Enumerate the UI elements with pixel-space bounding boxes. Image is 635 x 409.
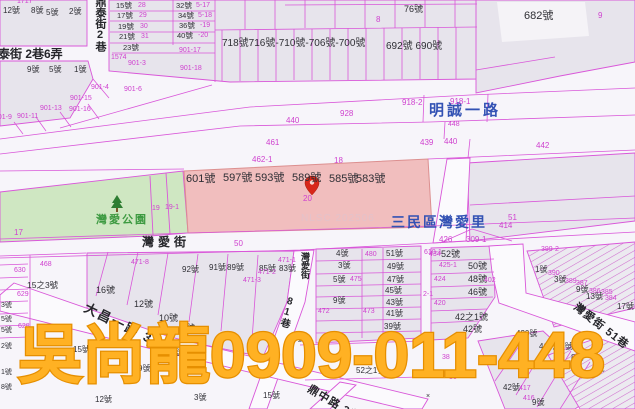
map-label: 901-11 — [17, 113, 38, 120]
map-label: 83號 — [279, 265, 296, 273]
lot-597: 597號 — [223, 173, 252, 184]
map-label: 76號 — [404, 5, 423, 14]
map-label: 8號 — [1, 384, 12, 391]
map-label: 480 — [365, 251, 377, 258]
map-label: 434 — [429, 251, 441, 258]
map-label: 1574 — [111, 54, 127, 61]
map-label: 439 — [420, 139, 433, 147]
map-label: 1號 — [535, 266, 547, 274]
lot-585: 585號 — [329, 174, 358, 185]
map-label: 8 — [376, 16, 380, 24]
map-label: 928 — [340, 110, 353, 118]
lot-589: 589號 — [292, 173, 321, 184]
map-label: 692號 690號 — [386, 42, 442, 52]
map-label: 51號 — [386, 250, 403, 258]
street-dingtai-lane2-vertical-label: 鼎泰街2巷 — [94, 0, 105, 52]
map-label: 50號 — [468, 262, 487, 271]
map-label: 471-8 — [131, 259, 149, 266]
map-label: 901-6 — [124, 86, 142, 93]
map-label: 17 — [14, 229, 23, 237]
map-label: 471-3 — [243, 277, 261, 284]
map-label: 15號 — [263, 392, 280, 400]
map-label: 9號 — [532, 399, 544, 407]
map-label: 18 — [334, 157, 343, 165]
map-label: 420 — [434, 300, 446, 307]
map-label: 471-1 — [278, 257, 296, 264]
agent-watermark: 吳尚龍0909-011-448 — [18, 323, 605, 387]
map-label: 4號 — [336, 250, 348, 258]
map-label: 19-1 — [165, 204, 179, 211]
map-label: 30 — [140, 23, 148, 30]
cadastral-map-viewport[interactable]: 鼎泰街 2巷6弄鼎泰街2巷明誠一路三民區灣愛里灣愛街灣愛街大昌一路 39巷鼎中路… — [0, 0, 635, 409]
map-label: × — [426, 393, 430, 400]
map-label: 901-9 — [0, 114, 12, 121]
map-label: 12號 — [3, 7, 20, 15]
map-label: 5號 — [333, 276, 345, 284]
map-label: 40號 — [177, 32, 193, 40]
map-label: 5號 — [46, 9, 58, 17]
map-label: 12號 — [95, 396, 112, 404]
map-label: 9號 — [333, 297, 345, 305]
map-label: 47號 — [387, 276, 404, 284]
map-label: 29 — [139, 12, 147, 19]
map-label: 91號 — [209, 264, 226, 272]
lot-601: 601號 — [186, 174, 215, 185]
map-label: 43號 — [386, 299, 403, 307]
map-label: 5號 — [49, 66, 61, 74]
lot-583: 583號 — [356, 174, 385, 185]
map-label: 901-16 — [69, 106, 91, 113]
map-label: 389 — [565, 278, 577, 285]
map-label: 414 — [499, 222, 512, 230]
map-label: 901-17 — [179, 47, 201, 54]
map-label: 19 — [152, 205, 160, 212]
map-label: 901-4 — [91, 84, 109, 91]
map-label: 15之3號 — [27, 281, 58, 290]
nlsc-watermark: NLSC 202506 — [301, 214, 375, 224]
map-label: 471-2 — [258, 269, 276, 276]
map-label: 50 — [234, 240, 243, 248]
map-label: 9號 — [27, 66, 39, 74]
map-label: 718號716號-710號-706號-700號 — [222, 39, 365, 49]
selected-parcel-number: 20 — [303, 195, 312, 203]
map-label: 424 — [434, 276, 446, 283]
map-label: 3號 — [338, 262, 350, 270]
map-label: 3號 — [1, 302, 12, 309]
map-label: 1號 — [74, 66, 86, 74]
map-label: 630 — [14, 267, 26, 274]
map-label: 28 — [138, 2, 146, 9]
map-label: 440 — [286, 117, 299, 125]
map-label: 629 — [17, 291, 29, 298]
map-label: 32號 — [176, 2, 192, 10]
map-label: 16號 — [96, 286, 115, 295]
map-label: 5-17 — [196, 2, 210, 9]
map-label: 9 — [598, 12, 602, 20]
map-label: 2號 — [1, 343, 12, 350]
map-label: 41號 — [386, 310, 403, 318]
map-label: 440 — [444, 138, 457, 146]
map-label: 918-1 — [450, 98, 470, 106]
map-label: 21號 — [119, 33, 135, 41]
map-label: 15號 — [116, 2, 132, 10]
map-label: 399-2 — [541, 246, 559, 253]
map-label: 426 — [439, 236, 452, 244]
map-label: 34號 — [178, 12, 194, 20]
street-wanai-label: 灣愛街 — [142, 236, 190, 248]
park-wanai-label: 灣愛公園 — [96, 215, 148, 226]
map-label: 1717 — [17, 0, 33, 5]
map-label: 36號 — [179, 22, 195, 30]
district-sanmin-wanai-label: 三民區灣愛里 — [391, 215, 487, 229]
map-label: 23號 — [123, 44, 139, 52]
map-label: 92號 — [182, 266, 199, 274]
street-dingtai-lane-label: 鼎泰街 2巷6弄 — [0, 48, 63, 60]
lot-593: 593號 — [255, 173, 284, 184]
map-label: 46號 — [468, 288, 487, 297]
map-label: -19 — [200, 22, 210, 29]
map-label: 901-3 — [128, 60, 146, 67]
map-label: 19號 — [118, 23, 134, 31]
map-label: 1號 — [1, 369, 12, 376]
map-label: 682號 — [524, 11, 553, 22]
map-label: 17號 — [617, 303, 634, 311]
map-label: 901-15 — [70, 95, 92, 102]
map-label: 5-18 — [198, 12, 212, 19]
map-label: 2號 — [69, 8, 81, 16]
map-label: 49號 — [387, 263, 404, 271]
map-label: 468 — [40, 261, 52, 268]
map-label: 17號 — [117, 12, 133, 20]
map-label: 473 — [363, 308, 375, 315]
map-label: -20 — [198, 32, 208, 39]
map-label: 5號 — [1, 327, 12, 334]
map-label: 462-1 — [252, 156, 272, 164]
map-label: 461 — [266, 139, 279, 147]
map-label: 475 — [350, 276, 362, 283]
map-label: 8號 — [31, 7, 43, 15]
map-label: 12號 — [134, 300, 153, 309]
map-label: 425-1 — [439, 262, 457, 269]
map-label: 918-2 — [402, 99, 422, 107]
map-label: 2-1 — [423, 291, 433, 298]
map-label: 472 — [318, 308, 330, 315]
map-label: 901-18 — [180, 65, 202, 72]
map-label: 89號 — [227, 264, 244, 272]
map-label: 384 — [605, 295, 617, 302]
map-label: 3號 — [194, 394, 206, 402]
map-label: 901-13 — [40, 105, 62, 112]
map-label: 45號 — [385, 287, 402, 295]
map-label: 402 — [484, 277, 496, 284]
map-label: 31 — [141, 33, 149, 40]
map-label: 13號 — [586, 293, 603, 301]
map-label: 52號 — [441, 250, 460, 259]
map-label: 442 — [536, 142, 549, 150]
map-label: 5號 — [1, 316, 12, 323]
street-wanai-vertical-label: 灣愛街 — [300, 252, 309, 279]
map-label: 448 — [448, 121, 460, 128]
map-label: 309-1 — [466, 236, 486, 244]
